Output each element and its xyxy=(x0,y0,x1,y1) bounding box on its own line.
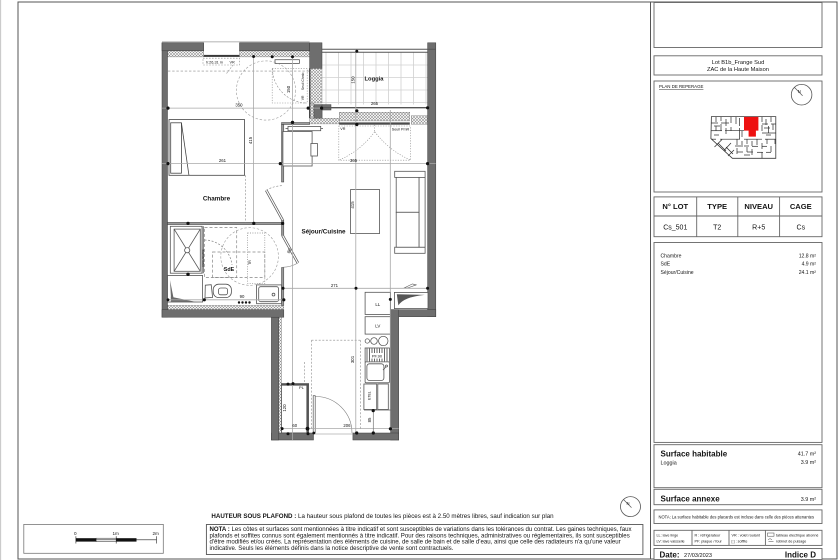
svg-text:415: 415 xyxy=(350,201,355,209)
svg-text:Cs: Cs xyxy=(797,224,806,231)
svg-text:206: 206 xyxy=(343,423,351,428)
svg-text:90: 90 xyxy=(240,294,245,299)
svg-text:SdE: SdE xyxy=(661,262,671,268)
svg-text:120: 120 xyxy=(282,404,287,412)
svg-text:PF: plaque / four: PF: plaque / four xyxy=(695,540,723,544)
svg-text:VR: VR xyxy=(301,95,305,100)
svg-text:Surface habitable: Surface habitable xyxy=(661,450,728,459)
svg-text:R : réfrigérateur: R : réfrigérateur xyxy=(695,534,722,538)
svg-text:LL: lave linge: LL: lave linge xyxy=(657,534,679,538)
svg-text:150: 150 xyxy=(286,85,291,93)
svg-text:LV: lave vaisselle: LV: lave vaisselle xyxy=(657,540,685,544)
svg-text:41.7 m²: 41.7 m² xyxy=(798,452,816,458)
svg-text:Chambre: Chambre xyxy=(661,253,682,259)
svg-text:301: 301 xyxy=(350,355,355,363)
svg-text:T2: T2 xyxy=(713,224,721,231)
svg-text:Séjour/Cuisine: Séjour/Cuisine xyxy=(301,228,346,235)
svg-text:12.8 m²: 12.8 m² xyxy=(799,253,817,259)
svg-text:Pare-douche: Pare-douche xyxy=(201,249,205,267)
svg-text:Surface annexe: Surface annexe xyxy=(661,495,721,504)
svg-text:[ ] : soffite: [ ] : soffite xyxy=(732,540,748,544)
svg-text:tableau électrique abonné: tableau électrique abonné xyxy=(776,534,818,538)
svg-text:TYPE: TYPE xyxy=(707,202,727,211)
svg-text:PF.90: PF.90 xyxy=(372,354,383,359)
svg-text:0: 0 xyxy=(74,531,77,536)
svg-text:Cs_501: Cs_501 xyxy=(663,224,687,231)
svg-text:NOTA: La surface habitable de: NOTA: La surface habitable des placards … xyxy=(659,515,815,520)
svg-text:Seuil Chmb: Seuil Chmb xyxy=(301,73,305,91)
svg-text:Indice D: Indice D xyxy=(785,551,816,560)
svg-text:365: 365 xyxy=(350,158,358,163)
svg-text:350: 350 xyxy=(235,103,243,108)
svg-text:4.9 m²: 4.9 m² xyxy=(802,262,817,268)
svg-text:LL: LL xyxy=(375,302,380,307)
svg-text:ZAC de la Haute Maison: ZAC de la Haute Maison xyxy=(707,67,769,73)
svg-text:h:26,31 m: h:26,31 m xyxy=(206,61,223,65)
svg-text:R+5: R+5 xyxy=(752,224,765,231)
svg-text:Lot B1b_Frange Sud: Lot B1b_Frange Sud xyxy=(712,60,765,66)
svg-text:N° LOT: N° LOT xyxy=(662,202,688,211)
svg-text:CAGE: CAGE xyxy=(790,202,812,211)
svg-text:1m: 1m xyxy=(113,531,120,536)
svg-text:Date:: Date: xyxy=(660,551,680,560)
svg-text:261: 261 xyxy=(219,158,227,163)
svg-text:2m: 2m xyxy=(153,531,160,536)
svg-text:24.1 m²: 24.1 m² xyxy=(799,270,817,276)
svg-text:Loggia: Loggia xyxy=(661,461,677,467)
svg-text:Loggia: Loggia xyxy=(365,77,385,83)
svg-text:PL: PL xyxy=(299,385,305,390)
svg-text:VR: VR xyxy=(230,61,236,65)
svg-text:3.9 m²: 3.9 m² xyxy=(801,460,816,466)
svg-text:N: N xyxy=(798,89,801,94)
svg-text:LV: LV xyxy=(375,323,380,328)
svg-text:60: 60 xyxy=(292,423,297,428)
svg-text:Chambre: Chambre xyxy=(203,195,231,202)
svg-text:SdE: SdE xyxy=(224,267,235,273)
svg-text:415: 415 xyxy=(248,136,253,144)
svg-text:NIVEAU: NIVEAU xyxy=(744,202,773,211)
svg-text:indicative. Seuls les éléments: indicative. Seuls les éléments définis d… xyxy=(210,545,454,552)
svg-text:Seuil PmR: Seuil PmR xyxy=(392,128,410,132)
svg-text:HAUTEUR SOUS PLAFOND : La haut: HAUTEUR SOUS PLAFOND : La hauteur sous p… xyxy=(211,513,554,520)
svg-text:robinet de puisage: robinet de puisage xyxy=(776,540,806,544)
svg-text:265: 265 xyxy=(371,101,379,106)
svg-text:271: 271 xyxy=(331,283,339,288)
svg-text:ETEL: ETEL xyxy=(368,391,372,400)
svg-text:VR : volet roulant: VR : volet roulant xyxy=(732,534,760,538)
svg-text:150: 150 xyxy=(350,76,355,84)
svg-text:3.9 m²: 3.9 m² xyxy=(801,497,816,503)
svg-text:TR: TR xyxy=(248,260,252,265)
svg-text:Séjour/Cuisine: Séjour/Cuisine xyxy=(661,270,694,276)
svg-text:85: 85 xyxy=(367,417,372,422)
svg-text:27/03/2023: 27/03/2023 xyxy=(684,553,712,559)
svg-text:PLAN DE REPERAGE: PLAN DE REPERAGE xyxy=(659,84,703,89)
svg-text:N: N xyxy=(627,501,630,506)
svg-text:VR: VR xyxy=(340,127,345,131)
